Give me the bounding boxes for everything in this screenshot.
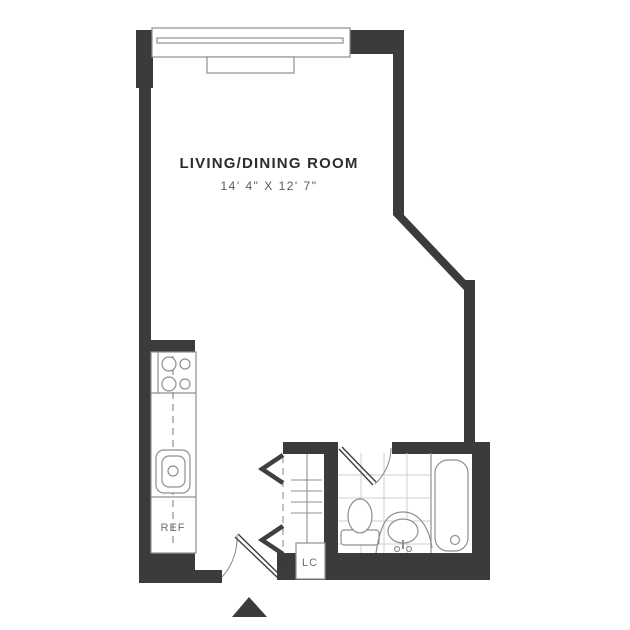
linen-closet-label: LC	[302, 557, 318, 569]
wall-bottom-left	[139, 552, 222, 583]
burner-icon	[162, 377, 176, 391]
burner-icon	[162, 357, 176, 371]
entry-door	[222, 534, 281, 578]
floor-plan-page: REF LC	[0, 0, 630, 630]
refrigerator-label: REF	[161, 522, 186, 534]
tub-drain-icon	[451, 536, 460, 545]
room-dimensions-label: 14' 4" X 12' 7"	[221, 179, 318, 193]
burner-icon	[180, 359, 190, 369]
faucet-handle-icon	[395, 547, 400, 552]
entry-door-swing-arc	[222, 535, 237, 577]
bathroom-door-swing-arc	[375, 448, 391, 484]
entry-triangle-marker	[232, 597, 267, 617]
window	[152, 28, 350, 73]
wall-bathroom-top	[392, 442, 472, 454]
wall-kitchen-top	[139, 340, 195, 352]
bathroom-door-leaf	[339, 449, 373, 485]
wall-closet-top	[283, 442, 325, 454]
pedestal-sink-basin	[388, 519, 418, 543]
bifold-door-chevron-icon	[262, 526, 283, 554]
bathroom-fixtures	[341, 448, 468, 553]
wall-right-upper	[393, 30, 404, 215]
entry-door-leaf	[235, 537, 278, 578]
room-name-label: LIVING/DINING ROOM	[179, 155, 358, 172]
bathroom-door-leaf	[342, 447, 376, 482]
floor-plan-drawing: REF LC	[0, 0, 630, 630]
toilet-bowl	[348, 499, 372, 533]
burner-icon	[180, 379, 190, 389]
bifold-door-chevron-icon	[262, 455, 283, 483]
window-sill	[207, 57, 294, 73]
sink-drain-icon	[168, 466, 178, 476]
bathroom-door	[339, 447, 376, 485]
wall-left	[139, 30, 151, 583]
faucet-handle-icon	[407, 547, 412, 552]
wall-diagonal	[393, 215, 475, 290]
wall-bathroom-right	[472, 442, 490, 580]
wall-right-lower	[464, 280, 475, 450]
window-glass	[157, 38, 343, 43]
wall-closet-bathroom-divider	[324, 442, 338, 580]
